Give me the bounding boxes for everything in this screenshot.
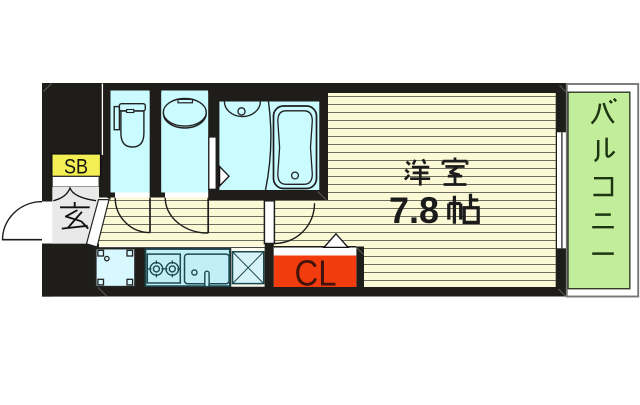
svg-text:SB: SB: [64, 156, 88, 179]
svg-text:7.8: 7.8: [389, 190, 439, 231]
svg-text:CL: CL: [295, 253, 337, 294]
